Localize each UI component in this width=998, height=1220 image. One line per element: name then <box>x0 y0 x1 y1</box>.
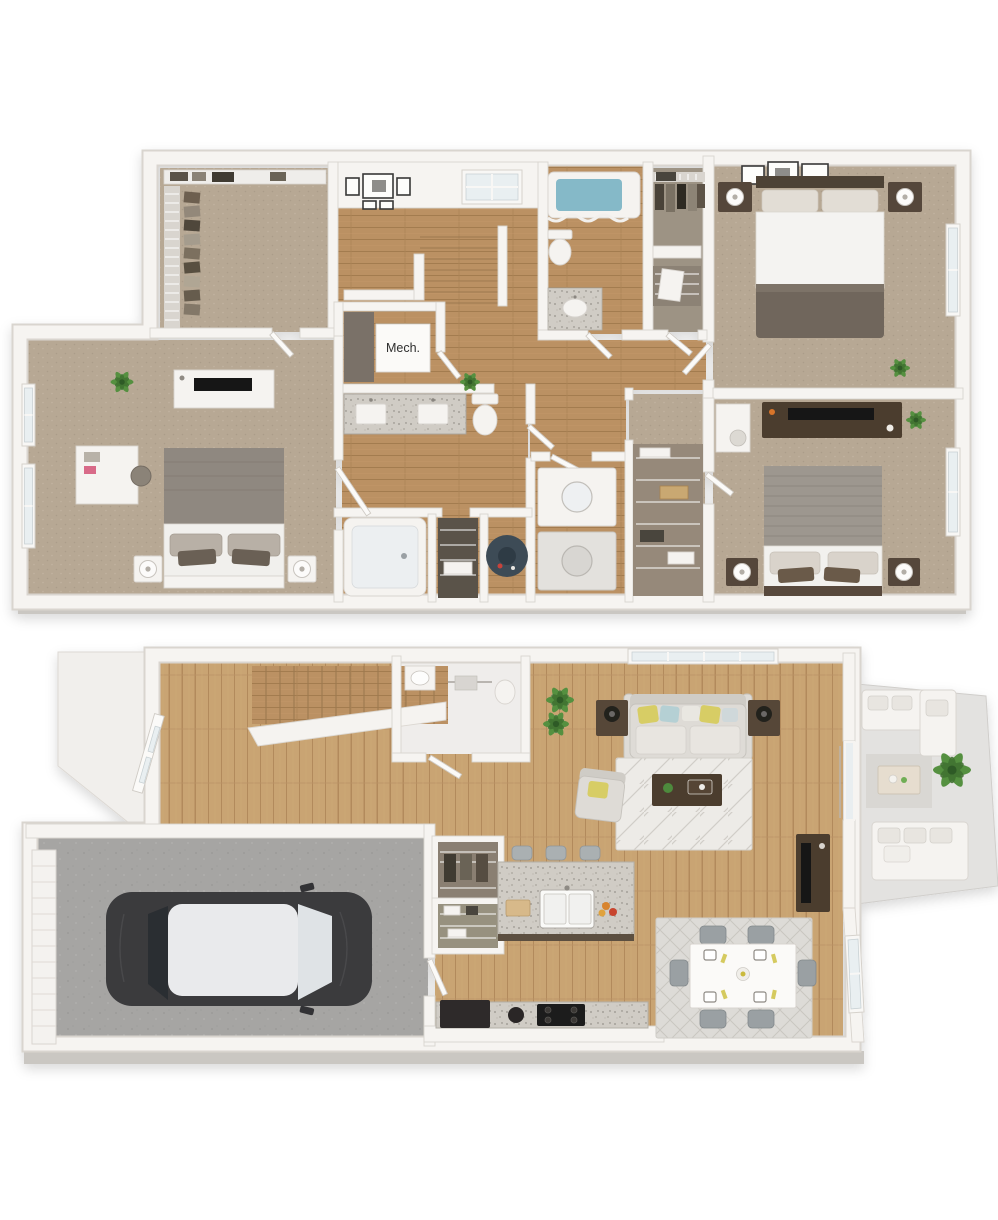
pillow-blue <box>659 705 680 723</box>
bathtub-water <box>556 179 622 211</box>
double-vanity <box>344 394 466 434</box>
towel <box>455 676 477 690</box>
upper-floor-plan: Mech. <box>18 156 966 614</box>
pillow-yellow-2 <box>699 705 721 725</box>
entry-canopy-roof <box>58 652 150 840</box>
bedroom3-dresser-tv <box>762 402 902 438</box>
coat-closet <box>432 836 504 906</box>
stove <box>537 1004 585 1026</box>
patio-sofa-bottom <box>872 822 968 880</box>
vanity-1 <box>548 288 602 330</box>
toilet-1 <box>548 230 572 265</box>
powder-toilet <box>495 680 515 704</box>
linen-closet-2 <box>633 444 703 596</box>
toilet-2 <box>472 394 498 435</box>
bedroom3-desk <box>716 404 750 452</box>
tub-room <box>344 518 426 596</box>
bathroom-2 <box>344 394 498 435</box>
pot <box>508 1007 524 1023</box>
floor-plan-page: Mech. <box>0 0 998 1220</box>
side-table-right <box>748 700 780 736</box>
hanging-clothes <box>184 191 201 315</box>
lower-slab-edge <box>24 1051 864 1064</box>
lower-floor-plan <box>24 649 998 1064</box>
hanging-clothes-2 <box>655 184 705 212</box>
master-nightstand-right <box>888 182 922 212</box>
tv-console <box>796 834 830 912</box>
master-nightstand-left <box>718 182 752 212</box>
leaning-mirror <box>658 269 684 302</box>
bedroom2-nightstand-right <box>288 556 316 582</box>
bedroom3-nightstand-left <box>726 558 758 586</box>
refrigerator <box>440 1000 490 1028</box>
dining-table <box>690 944 796 1008</box>
side-table-left <box>596 700 628 736</box>
pillow-yellow <box>637 705 659 725</box>
bar-stools <box>512 846 600 860</box>
car <box>106 882 372 1015</box>
car-roof <box>168 904 298 996</box>
dining-area <box>656 918 816 1038</box>
stair-railing-wall <box>344 290 424 300</box>
bedroom2-bed <box>164 448 284 588</box>
kitchen-counter-run <box>436 1000 648 1028</box>
bedroom3-nightstand-right <box>888 558 920 586</box>
living-window-band <box>628 649 778 664</box>
patio-coffee-table <box>878 766 920 794</box>
floor-plan-rendering: Mech. <box>0 0 998 1220</box>
kitchen-island <box>498 862 634 941</box>
armchair <box>575 767 627 822</box>
mech-label: Mech. <box>386 341 420 355</box>
hall-window <box>462 170 522 204</box>
linen-closet-1 <box>438 518 478 598</box>
bedroom2-dresser <box>174 370 274 408</box>
sofa <box>624 694 752 760</box>
tv-screen <box>801 843 811 903</box>
bedroom3-bed <box>764 466 882 596</box>
water-heater-closet <box>486 535 528 577</box>
coffee-table <box>652 774 722 806</box>
cutting-board <box>506 900 530 916</box>
pantry-closet <box>432 898 504 954</box>
patio <box>857 684 998 904</box>
garage-door <box>32 850 56 1044</box>
patio-slider-door <box>845 742 854 820</box>
island-sink <box>540 885 594 928</box>
bedroom2-nightstand-left <box>134 556 162 582</box>
car-rear-window <box>148 906 168 1000</box>
